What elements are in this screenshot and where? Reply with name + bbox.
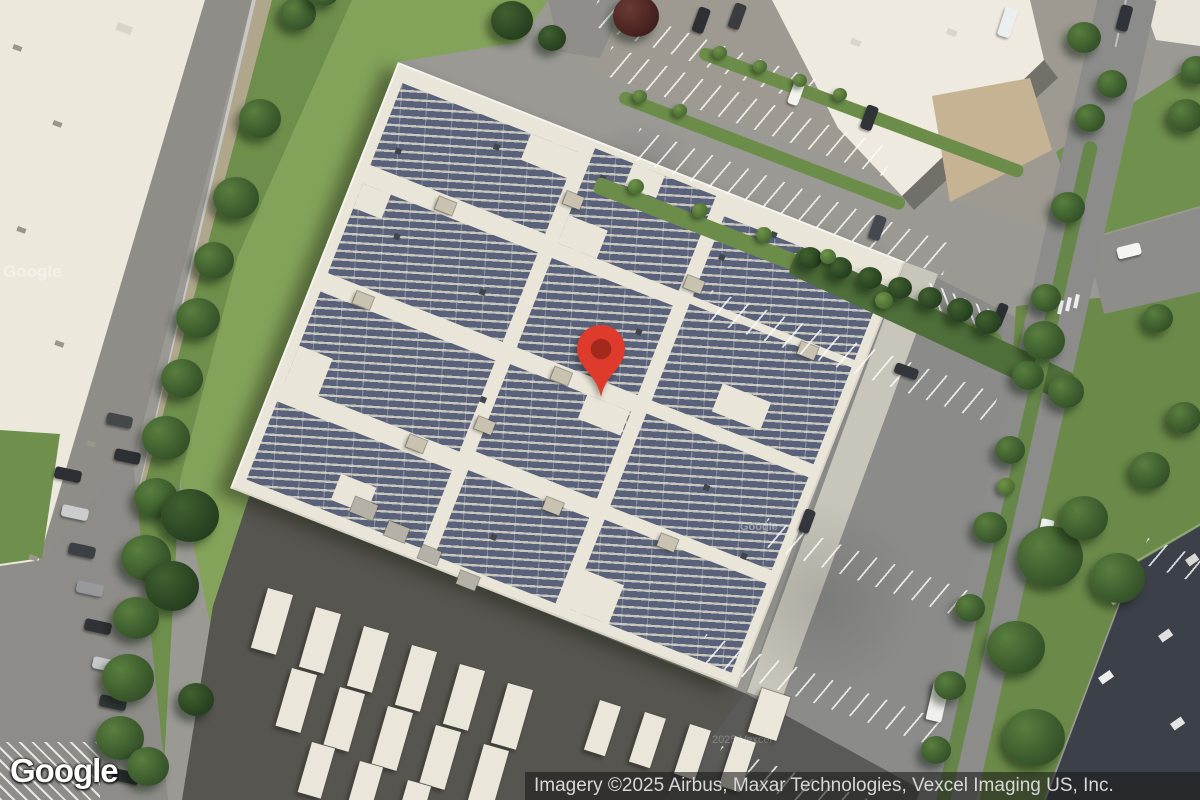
tree <box>1003 709 1065 766</box>
tree <box>142 416 190 460</box>
tree <box>113 597 159 639</box>
tree <box>973 512 1007 543</box>
tree <box>628 179 644 194</box>
pin-inner-circle <box>591 339 612 360</box>
tree <box>1060 496 1108 540</box>
tree <box>975 310 1001 334</box>
tree <box>491 1 533 40</box>
tree <box>1130 452 1170 489</box>
roof-vent <box>479 396 487 404</box>
map-marker-pin[interactable] <box>573 324 629 400</box>
tree <box>633 90 647 103</box>
tree <box>1075 104 1105 132</box>
tree <box>955 594 985 622</box>
satellite-imagery <box>0 0 1200 800</box>
tree <box>102 654 154 702</box>
google-logo[interactable]: Google <box>10 752 118 790</box>
tree <box>161 489 219 542</box>
tree <box>161 359 203 398</box>
tree <box>692 203 708 218</box>
tree <box>213 177 259 219</box>
tree <box>1051 192 1085 223</box>
tree <box>987 621 1045 674</box>
tree <box>538 25 566 51</box>
tree <box>1012 361 1044 390</box>
tree <box>673 104 687 117</box>
tree <box>1031 284 1061 312</box>
tree <box>875 292 893 309</box>
tree <box>997 478 1015 495</box>
tree <box>820 249 836 264</box>
tree <box>1048 375 1084 408</box>
tree <box>127 747 169 786</box>
tree <box>798 247 822 269</box>
tree <box>858 267 882 289</box>
tree <box>176 298 220 338</box>
tree <box>995 436 1025 464</box>
tree <box>1167 402 1200 433</box>
pin-body <box>577 325 625 397</box>
tree <box>918 287 942 309</box>
tree <box>756 227 772 242</box>
tree <box>934 671 966 700</box>
tree <box>194 242 234 279</box>
attribution-text: Imagery ©2025 Airbus, Maxar Technologies… <box>534 775 1114 796</box>
tree <box>1097 70 1127 98</box>
map-canvas[interactable]: ©2025 Google Google 2025 Vexcel Google I… <box>0 0 1200 800</box>
tree <box>178 683 214 716</box>
tree <box>1023 321 1065 360</box>
tree <box>947 298 973 322</box>
tree <box>1143 304 1173 332</box>
tree <box>793 74 807 87</box>
tree <box>1168 99 1200 132</box>
tree <box>713 46 727 59</box>
tree <box>239 99 281 138</box>
tree <box>1067 22 1101 53</box>
tree <box>1091 553 1145 603</box>
tree <box>921 736 951 764</box>
attribution-bar: Imagery ©2025 Airbus, Maxar Technologies… <box>525 772 1200 800</box>
tree <box>753 60 767 73</box>
tree <box>833 88 847 101</box>
